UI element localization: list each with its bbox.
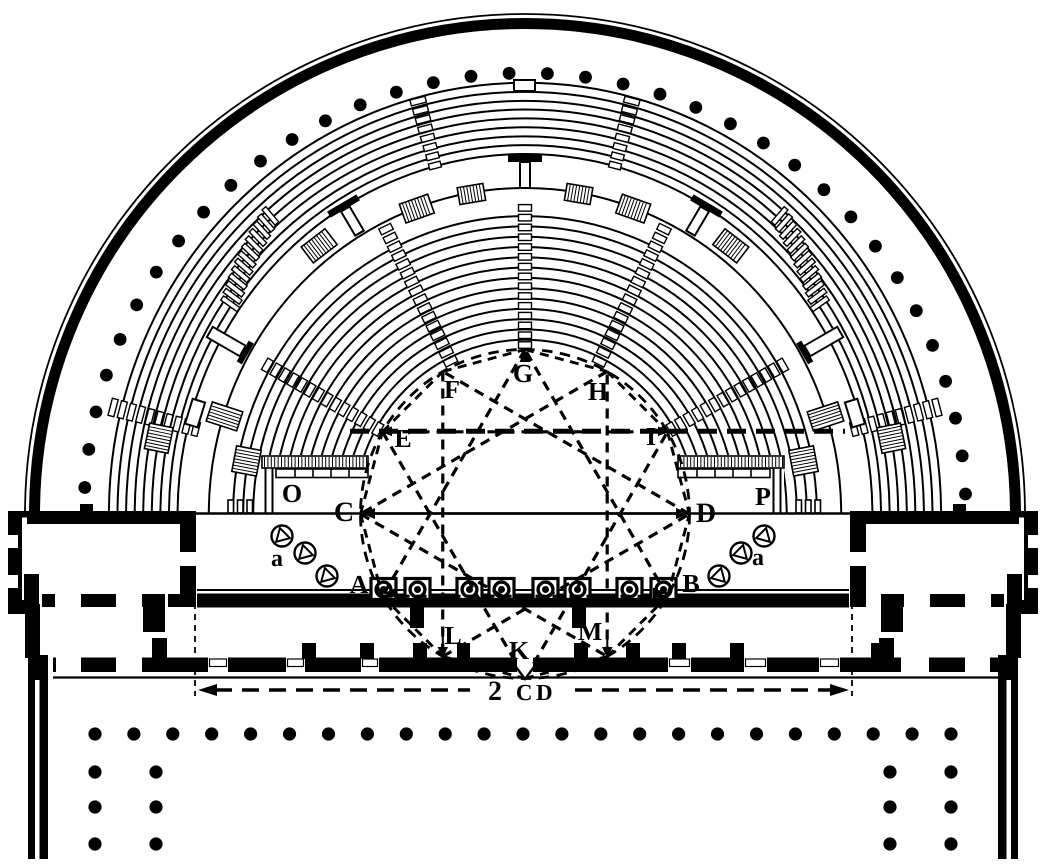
svg-text:a: a	[271, 546, 283, 572]
svg-text:D: D	[696, 498, 716, 529]
svg-text:K: K	[509, 636, 530, 665]
svg-text:L: L	[444, 621, 461, 650]
svg-text:I: I	[646, 422, 656, 451]
svg-text:M: M	[578, 617, 603, 646]
svg-text:C: C	[334, 497, 354, 528]
svg-text:P: P	[755, 482, 771, 511]
svg-text:a: a	[752, 545, 764, 571]
svg-text:B: B	[682, 569, 699, 598]
svg-text:G: G	[513, 359, 533, 388]
svg-text:E: E	[394, 424, 411, 453]
svg-text:F: F	[444, 375, 460, 404]
svg-text:H: H	[588, 377, 608, 406]
svg-text:2: 2	[488, 676, 502, 707]
svg-text:CD: CD	[516, 680, 556, 705]
svg-text:A: A	[350, 570, 369, 599]
svg-text:O: O	[282, 479, 302, 508]
